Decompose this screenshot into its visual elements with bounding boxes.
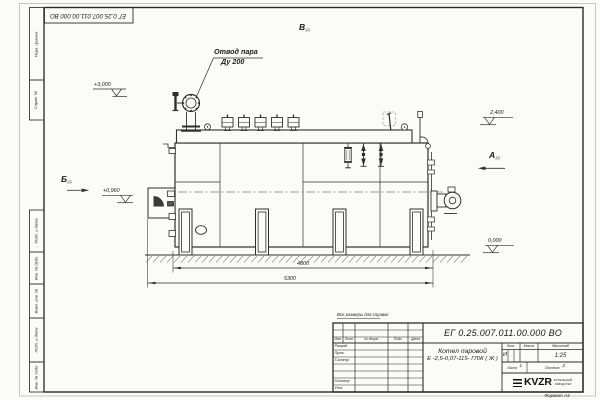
elevation-marks <box>93 89 514 253</box>
sheets-total-cell: Листов 2 <box>527 362 583 373</box>
stamp-vzam-inv: Взам. инв. № <box>29 284 44 318</box>
lit-value: И <box>502 350 508 362</box>
product-name: Котел паровой Е -2,5-0,07-115- ГЛЖ ( Ж ) <box>424 347 501 364</box>
boiler-side-view <box>67 58 514 288</box>
top-hatches <box>222 115 299 131</box>
sheet-number-cell: Лист 1 <box>502 362 527 373</box>
reference-note: Все размеры для справок <box>337 313 388 317</box>
designation-flipped-box: ЕГ 0.25.007.011.00.000 ВО <box>44 7 133 23</box>
stamp-podp-data-2: Подп. и дата <box>29 318 44 362</box>
support-legs <box>179 209 423 255</box>
elevation-0960: +0,960 <box>103 189 120 194</box>
stamp-inv-dubl: Инв. № дубл. <box>29 252 44 284</box>
format-label: Формат А3 <box>527 393 587 400</box>
view-arrows <box>67 167 505 193</box>
callout-steam-outlet-line1: Отвод пара <box>214 48 258 55</box>
dimension-4800: 4800 <box>284 262 322 267</box>
callout-steam-outlet-line2: Ду 200 <box>221 58 244 65</box>
header-lit: Лит. <box>502 344 520 350</box>
header-mass: Масса <box>520 344 538 350</box>
stamp-inv-podl: Инв. № подл. <box>29 362 44 392</box>
kvzr-logo-caption: КОТЕЛЬНЫЙ ЗАВОД РЭП <box>554 379 572 386</box>
burner-assembly <box>428 152 461 240</box>
row-label-checked: Пров. <box>335 352 345 356</box>
view-marker-b: Б(2) <box>61 175 72 184</box>
stamp-perv-primen: Перв. примен. <box>29 7 44 80</box>
designation-flipped-text: ЕГ 0.25.007.011.00.000 ВО <box>50 12 126 18</box>
row-label-approved: Утв. <box>335 387 344 391</box>
row-label-ncontrol: Н.контр. <box>335 380 351 384</box>
elevation-0000: 0,000 <box>488 239 502 244</box>
product-name-line2: Е -2,5-0,07-115- ГЛЖ ( Ж ) <box>424 356 501 364</box>
rev-header-izm: Изм. <box>333 337 343 343</box>
view-marker-a: А(2) <box>489 151 500 160</box>
front-fittings <box>148 144 176 237</box>
water-level-gauges <box>344 143 384 168</box>
stamp-sprav-no: Справ. № <box>29 80 44 120</box>
rev-header-sign: Подп. <box>388 337 408 343</box>
elevation-2400: 2,400 <box>490 111 504 116</box>
dimension-5300: 5300 <box>271 277 309 282</box>
company-logo: KVZR КОТЕЛЬНЫЙ ЗАВОД РЭП <box>503 374 582 392</box>
view-marker-top: В(2) <box>299 23 310 32</box>
drawing-sheet: ЕГ 0.25.007.011.00.000 ВО Перв. примен. … <box>0 0 600 400</box>
product-name-line1: Котел паровой <box>424 347 501 356</box>
kvzr-logo-text: KVZR <box>524 377 552 388</box>
stamp-podp-data-1: Подп. и дата <box>29 210 44 252</box>
title-block-designation: ЕГ 0.25.007.011.00.000 ВО <box>424 323 582 343</box>
boiler-body <box>162 130 443 247</box>
elevation-3000: +3,000 <box>94 83 111 88</box>
kvzr-logo-icon <box>513 379 522 387</box>
header-scale: Масштаб <box>538 344 583 350</box>
rev-header-list: Лист <box>343 337 355 343</box>
rev-header-doc: № докум. <box>355 337 388 343</box>
row-label-tcontrol: Т.контр. <box>335 359 350 363</box>
row-label-developed: Разраб. <box>335 345 349 349</box>
scale-value: 1:25 <box>538 350 583 362</box>
rev-header-date: Дата <box>408 337 423 343</box>
